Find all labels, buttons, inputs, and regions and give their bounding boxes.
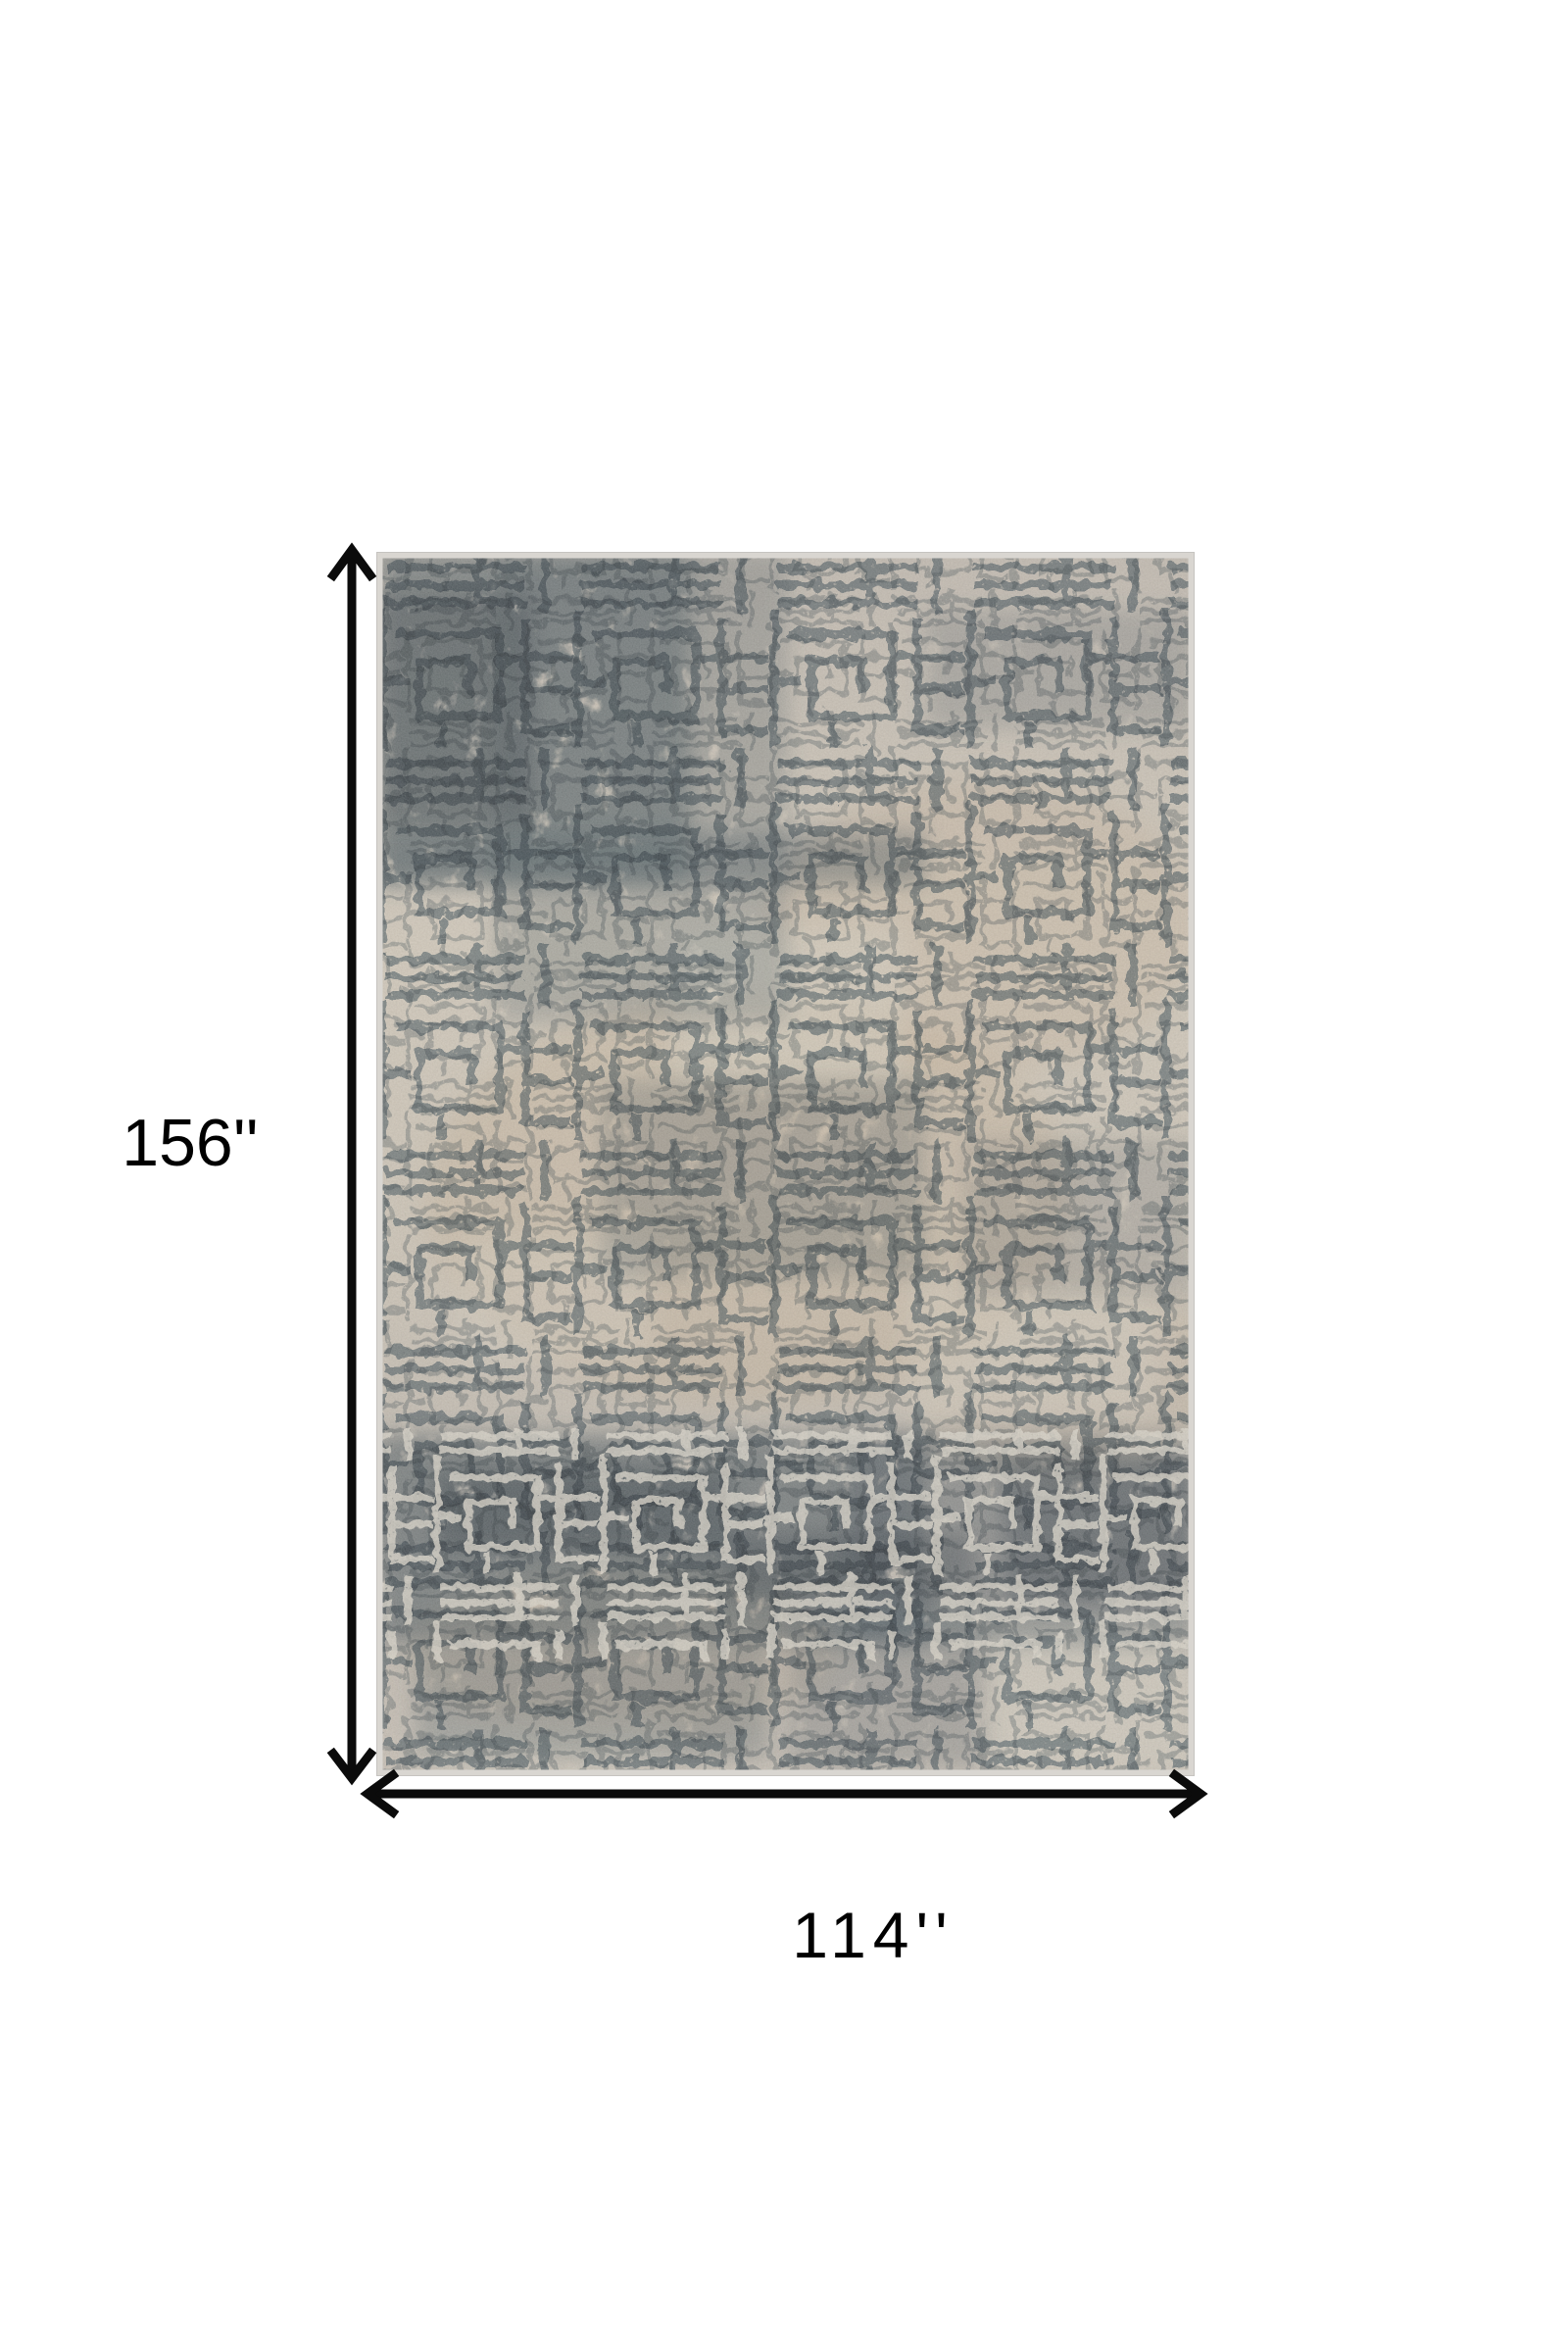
height-dimension-label: 156'' [86, 1110, 294, 1176]
dimension-diagram: 156'' 114'' [0, 0, 1568, 2329]
width-dimension-label: 114'' [770, 1903, 976, 1967]
height-dimension-arrow [333, 550, 370, 1778]
rug-image [376, 552, 1195, 1776]
width-dimension-arrow [367, 1775, 1200, 1812]
